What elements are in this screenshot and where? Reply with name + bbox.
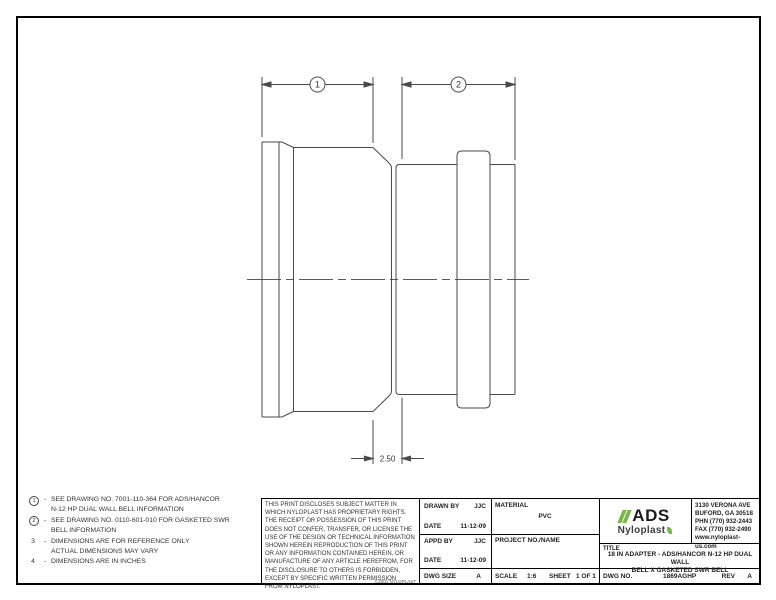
scale-sheet-cell: SCALE 1:6 SHEET 1 OF 1 — [491, 568, 599, 585]
note-3: 3 - DIMENSIONS ARE FOR REFERENCE ONLY AC… — [29, 537, 230, 558]
copyright-text: ©2001 NYLOPLAST — [375, 579, 416, 584]
drawing-title-cell: TITLE 18 IN ADAPTER - ADS/HANCOR N-12 HP… — [599, 543, 761, 568]
note-3-dash: - — [44, 537, 51, 558]
nyloplast-leaf-icon — [667, 527, 672, 534]
dwg-size-label: DWG SIZE — [424, 573, 456, 580]
company-address: 3130 VERONA AVE BUFORD, GA 30518 PHN (77… — [691, 499, 761, 543]
dwg-size-cell: DWG SIZE A — [419, 568, 491, 585]
note-1-line2: N-12 HP DUAL WALL BELL INFORMATION — [51, 505, 220, 515]
drawn-by-label: DRAWN BY — [424, 503, 459, 510]
balloon-2-number: 2 — [456, 80, 461, 90]
note-1: 1 - SEE DRAWING NO. 7001-110-364 FOR ADS… — [29, 495, 230, 516]
drawing-sheet: 1 2 2.50 1 - SEE DRAWING NO. 7001-110-36… — [0, 0, 776, 600]
material-cell: MATERIAL PVC — [491, 499, 599, 534]
dwg-no-cell: DWG NO. 1869AGHP REV A — [599, 568, 761, 585]
address-line: PHN (770) 932-2443 — [695, 518, 761, 526]
note-3-number: 3 — [29, 537, 37, 547]
dwg-no-label: DWG NO. — [603, 573, 632, 580]
project-label: PROJECT NO./NAME — [495, 537, 560, 544]
address-line: BUFORD, GA 30518 — [695, 510, 761, 518]
proprietary-text: THIS PRINT DISCLOSES SUBJECT MATTER IN W… — [265, 501, 415, 591]
drawn-by-value: JJC — [474, 503, 486, 510]
note-4-number: 4 — [29, 557, 37, 567]
appd-by-cell: APPD BY JJC DATE 11-12-09 — [419, 534, 491, 568]
sheet-value: 1 OF 1 — [576, 573, 596, 580]
note-2-dash: - — [44, 516, 51, 537]
material-label: MATERIAL — [495, 502, 528, 509]
drawn-date-value: 11-12-09 — [460, 523, 486, 530]
note-1-line1: SEE DRAWING NO. 7001-110-364 FOR ADS/HAN… — [51, 495, 220, 505]
drawn-date-label: DATE — [424, 523, 441, 530]
drawn-by-cell: DRAWN BY JJC DATE 11-12-09 — [419, 499, 491, 534]
drawing-title-line1: 18 IN ADAPTER - ADS/HANCOR N-12 HP DUAL … — [599, 551, 761, 567]
scale-value: 1:6 — [527, 573, 536, 580]
note-2-line1: SEE DRAWING NO. 0110-601-010 FOR GASKETE… — [51, 516, 230, 526]
note-3-line2: ACTUAL DIMENSIONS MAY VARY — [51, 547, 189, 557]
material-value: PVC — [491, 513, 599, 520]
appd-by-label: APPD BY — [424, 538, 453, 545]
note-1-balloon: 1 — [29, 496, 39, 506]
note-3-line1: DIMENSIONS ARE FOR REFERENCE ONLY — [51, 537, 189, 547]
note-4: 4 - DIMENSIONS ARE IN INCHES — [29, 557, 230, 567]
note-2-balloon: 2 — [29, 516, 39, 526]
general-notes: 1 - SEE DRAWING NO. 7001-110-364 FOR ADS… — [29, 495, 230, 568]
appd-date-value: 11-12-09 — [460, 557, 486, 564]
balloon-1-number: 1 — [315, 80, 320, 90]
appd-date-label: DATE — [424, 557, 441, 564]
project-cell: PROJECT NO./NAME — [491, 534, 599, 568]
scale-label: SCALE — [495, 573, 517, 580]
dwg-size-value: A — [476, 573, 481, 580]
company-logo: ADS Nyloplast — [599, 499, 691, 543]
rev-value: A — [747, 573, 752, 580]
nyloplast-logo-text: Nyloplast — [618, 525, 666, 536]
sheet-label: SHEET — [549, 573, 571, 580]
note-4-line1: DIMENSIONS ARE IN INCHES — [51, 557, 146, 567]
taper-dimension-text: 2.50 — [380, 455, 396, 464]
appd-by-value: JJC — [474, 538, 486, 545]
address-line: 3130 VERONA AVE — [695, 502, 761, 510]
title-block: THIS PRINT DISCLOSES SUBJECT MATTER IN W… — [261, 498, 761, 585]
note-4-dash: - — [44, 557, 51, 567]
proprietary-notice: THIS PRINT DISCLOSES SUBJECT MATTER IN W… — [262, 499, 419, 585]
note-2-line2: BELL INFORMATION — [51, 526, 230, 536]
rev-label: REV — [722, 573, 735, 580]
address-line: FAX (770) 932-2490 — [695, 526, 761, 534]
ads-logo-text: ADS — [632, 506, 669, 526]
note-1-dash: - — [44, 495, 51, 516]
dwg-no-value: 1869AGHP — [663, 573, 696, 580]
note-2: 2 - SEE DRAWING NO. 0110-601-010 FOR GAS… — [29, 516, 230, 537]
